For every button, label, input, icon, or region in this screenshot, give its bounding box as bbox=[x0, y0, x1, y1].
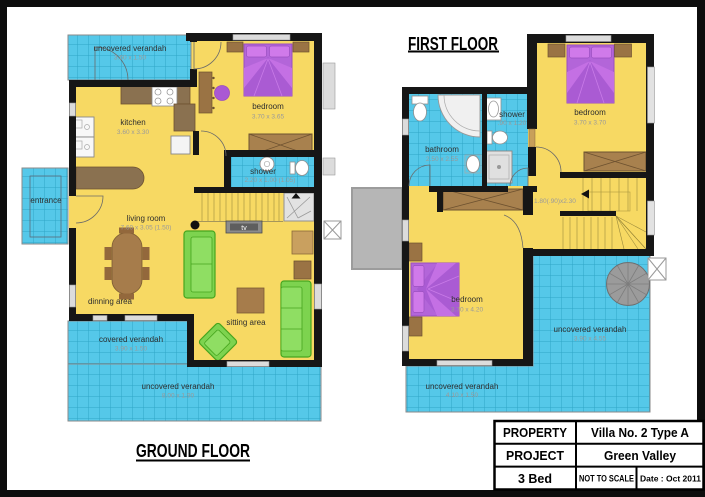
svg-text:3 Bed: 3 Bed bbox=[518, 471, 552, 486]
svg-text:3.90 x 1.50: 3.90 x 1.50 bbox=[115, 346, 148, 353]
svg-text:shower: shower bbox=[250, 167, 276, 176]
svg-text:NOT TO SCALE: NOT TO SCALE bbox=[579, 474, 634, 484]
svg-text:uncovered verandah: uncovered verandah bbox=[142, 382, 215, 391]
svg-text:bedroom: bedroom bbox=[574, 108, 606, 117]
svg-text:PROJECT: PROJECT bbox=[506, 448, 564, 463]
svg-text:3.60 x 3.30: 3.60 x 3.30 bbox=[117, 129, 150, 136]
svg-text:bedroom: bedroom bbox=[451, 295, 483, 304]
svg-text:entrance: entrance bbox=[30, 196, 62, 205]
svg-text:PROPERTY: PROPERTY bbox=[503, 425, 567, 440]
svg-text:uncovered verandah: uncovered verandah bbox=[94, 44, 167, 53]
svg-text:Green Valley: Green Valley bbox=[604, 449, 676, 463]
svg-text:sitting area: sitting area bbox=[226, 318, 266, 327]
svg-text:covered verandah: covered verandah bbox=[99, 335, 163, 344]
svg-text:3.90 x 4.55: 3.90 x 4.55 bbox=[574, 336, 607, 343]
svg-text:Date : Oct 2011: Date : Oct 2011 bbox=[640, 474, 701, 484]
svg-text:living room: living room bbox=[127, 214, 166, 223]
svg-text:3.70 x 3.70: 3.70 x 3.70 bbox=[574, 120, 607, 127]
svg-text:8.00 x 1.90: 8.00 x 1.90 bbox=[162, 393, 195, 400]
svg-text:dinning area: dinning area bbox=[88, 297, 133, 306]
svg-text:tv: tv bbox=[241, 225, 247, 232]
svg-text:uncovered verandah: uncovered verandah bbox=[426, 382, 499, 391]
svg-text:4.10 x 1.50: 4.10 x 1.50 bbox=[446, 392, 479, 399]
svg-text:2.20 x 1.00 (1.05): 2.20 x 1.00 (1.05) bbox=[245, 177, 296, 184]
svg-text:bathroom: bathroom bbox=[425, 145, 459, 154]
svg-text:shower: shower bbox=[499, 110, 525, 119]
svg-text:3.70 x 3.65: 3.70 x 3.65 bbox=[252, 114, 285, 121]
svg-text:3.70 x 4.20: 3.70 x 4.20 bbox=[451, 307, 484, 314]
svg-text:7.60 x 3.05 (1.50): 7.60 x 3.05 (1.50) bbox=[121, 225, 172, 232]
svg-text:uncovered verandah: uncovered verandah bbox=[554, 325, 627, 334]
svg-text:1.80(.90)x2.30: 1.80(.90)x2.30 bbox=[534, 198, 576, 205]
svg-text:Villa No. 2 Type A: Villa No. 2 Type A bbox=[591, 426, 689, 440]
svg-text:bedroom: bedroom bbox=[252, 102, 284, 111]
svg-text:GROUND FLOOR: GROUND FLOOR bbox=[136, 441, 250, 461]
svg-text:kitchen: kitchen bbox=[120, 118, 145, 127]
svg-text:3.60 x 1.50: 3.60 x 1.50 bbox=[114, 55, 147, 62]
svg-text:.90 x 1.20: .90 x 1.20 bbox=[498, 120, 527, 127]
svg-text:2.50 x 2.55: 2.50 x 2.55 bbox=[426, 156, 459, 163]
